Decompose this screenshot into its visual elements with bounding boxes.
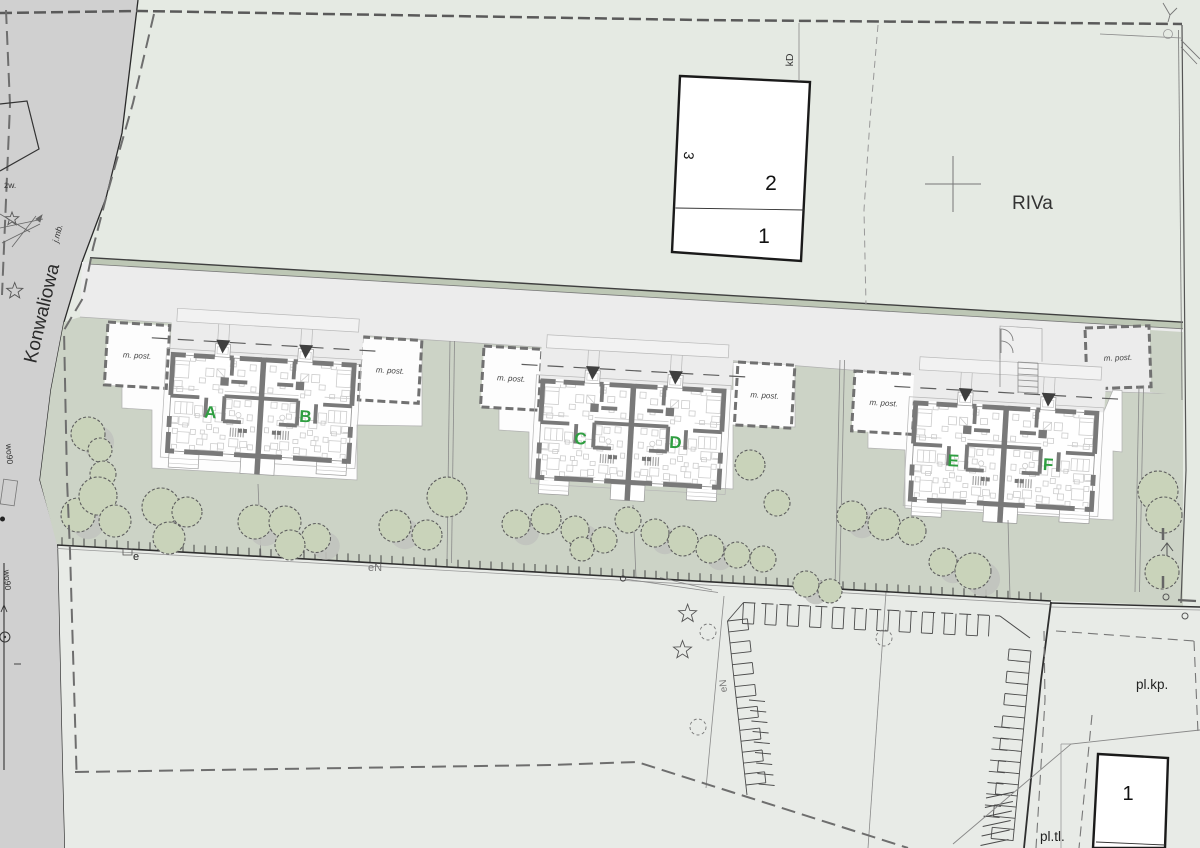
svg-text:B: B	[299, 407, 312, 427]
svg-text:eN: eN	[368, 562, 382, 574]
svg-text:kD: kD	[784, 53, 796, 66]
svg-text:1: 1	[758, 225, 770, 248]
svg-text:m. post.: m. post.	[1104, 353, 1133, 363]
svg-text:F: F	[1042, 455, 1053, 475]
svg-text:m. post.: m. post.	[750, 390, 779, 401]
svg-text:m. post.: m. post.	[497, 373, 526, 384]
svg-text:eN: eN	[718, 679, 730, 693]
svg-text:m. post.: m. post.	[376, 365, 405, 376]
svg-text:A: A	[204, 403, 217, 423]
svg-text:C: C	[574, 429, 587, 449]
svg-text:m. post.: m. post.	[869, 398, 898, 409]
svg-text:pl.tl.: pl.tl.	[1040, 829, 1065, 844]
svg-text:RIVa: RIVa	[1012, 193, 1053, 214]
svg-text:wo90: wo90	[4, 443, 15, 465]
svg-text:E: E	[947, 451, 959, 471]
svg-text:2: 2	[765, 172, 777, 195]
svg-text:1: 1	[1122, 783, 1133, 805]
svg-text:pl.kp.: pl.kp.	[1136, 677, 1168, 692]
svg-text:żw.: żw.	[4, 180, 16, 190]
svg-text:m. post.: m. post.	[123, 350, 152, 361]
svg-text:D: D	[669, 433, 682, 453]
svg-text:e: e	[133, 551, 139, 563]
